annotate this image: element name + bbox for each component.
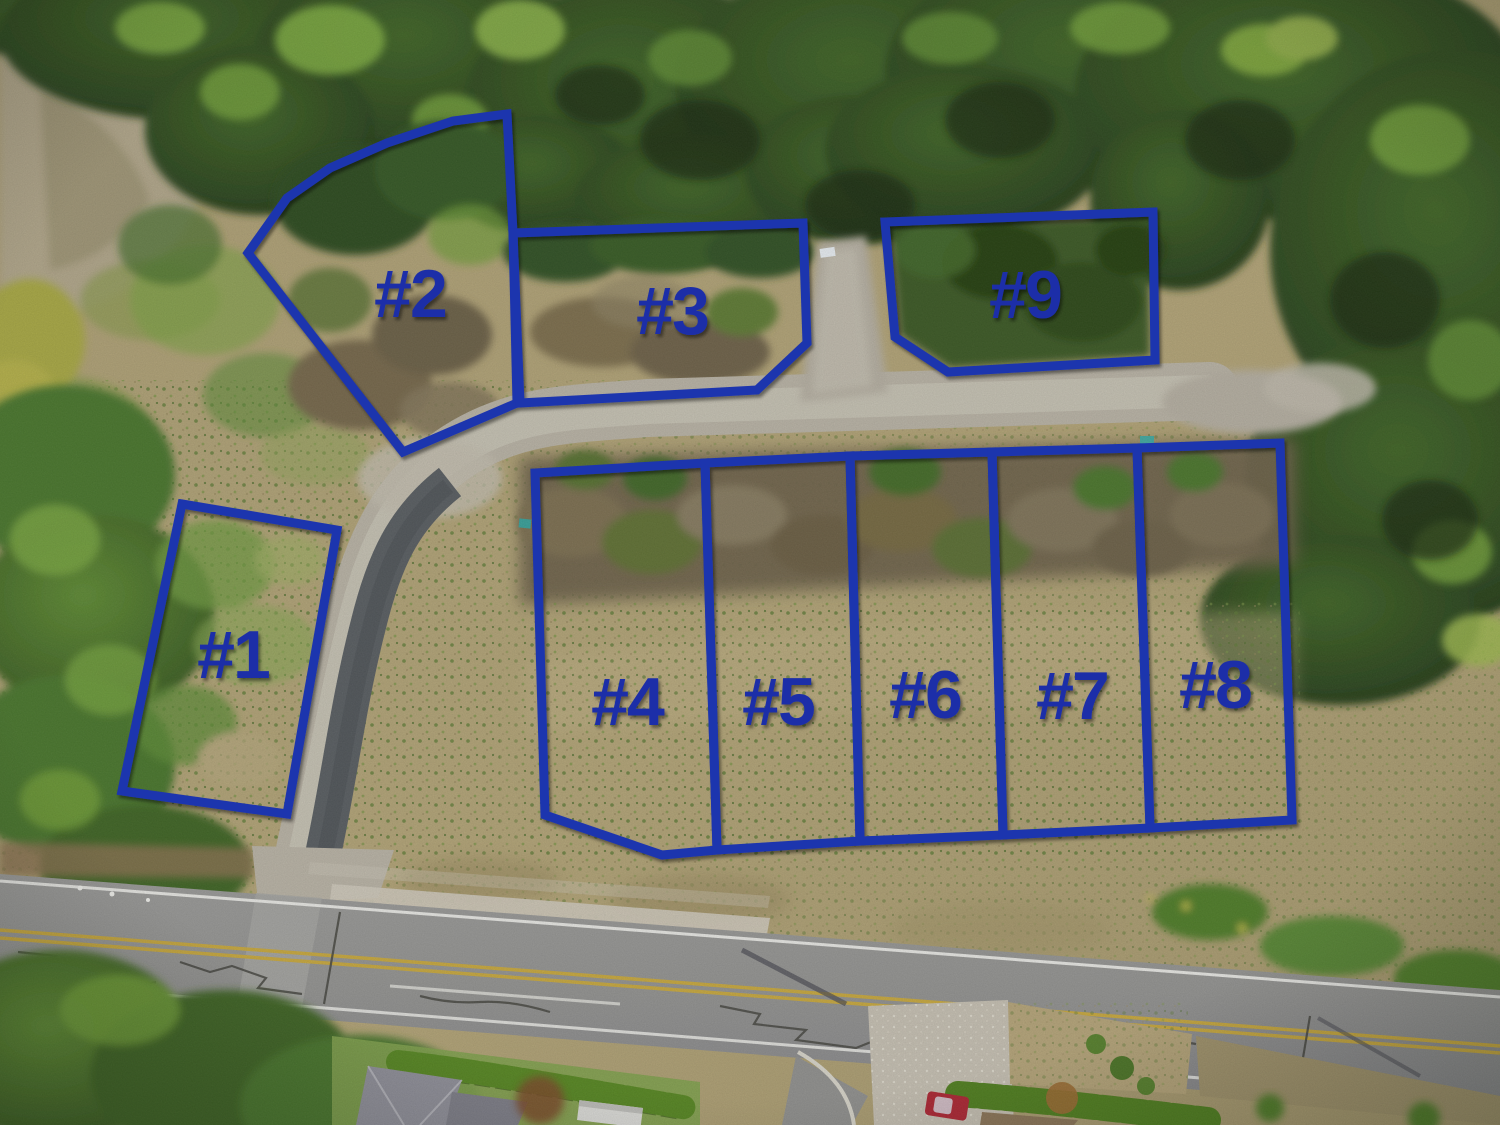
aerial-photo-canvas: #1#2#3#4#5#6#7#8#9: [0, 0, 1500, 1125]
aerial-photo: #1#2#3#4#5#6#7#8#9: [0, 0, 1500, 1125]
lot-label-8: #8: [1179, 647, 1251, 723]
lot-label-9: #9: [989, 257, 1061, 333]
lot-label-3: #3: [636, 273, 708, 349]
vignette: [0, 0, 1500, 1125]
lot-label-6: #6: [889, 657, 961, 733]
lot-label-1: #1: [197, 617, 269, 693]
lot-label-2: #2: [374, 256, 446, 332]
lot-label-4: #4: [591, 664, 665, 740]
lot-label-7: #7: [1036, 658, 1108, 734]
lot-label-5: #5: [742, 664, 814, 740]
